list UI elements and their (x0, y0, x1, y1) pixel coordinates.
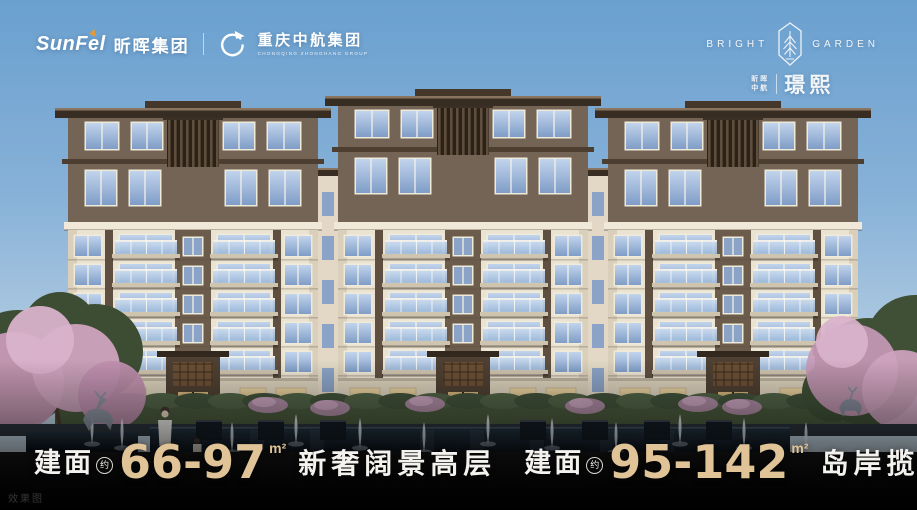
zhonghang-plane-icon (217, 30, 245, 58)
area-prefix: 建面 (34, 450, 94, 477)
project-name: 璟熙 (784, 69, 834, 99)
area-prefix: 建面 (524, 450, 584, 477)
zhonghang-cn-name: 重庆中航集团 (258, 32, 369, 49)
emblem-brand-line1: 昕晖 (751, 75, 769, 84)
area-unit: m² (269, 441, 286, 455)
emblem-row: BRIGHT GARDEN (706, 22, 879, 66)
tagline-flats: 建面 约 95-142 m² 岛岸揽景洋房 (524, 441, 917, 482)
project-emblem: BRIGHT GARDEN 昕晖 中航 璟熙 (706, 22, 879, 99)
zhonghang-logo: 重庆中航集团 CHONGQING ZHONGHANG GROUP (258, 32, 369, 57)
render-watermark: 效果图 (8, 490, 44, 505)
emblem-brand-line2: 中航 (751, 84, 769, 93)
area-unit: m² (791, 441, 808, 455)
logo-divider (203, 33, 204, 55)
area-range: 95-142 (609, 444, 788, 482)
approx-circle-icon: 约 (96, 457, 113, 474)
approx-circle-icon: 约 (586, 457, 603, 474)
emblem-divider (776, 74, 777, 94)
emblem-word-left: BRIGHT (706, 39, 768, 50)
emblem-subtitle: 昕晖 中航 璟熙 (751, 69, 834, 99)
zhonghang-en-name: CHONGQING ZHONGHANG GROUP (258, 51, 369, 56)
sunfel-cn-name: 昕晖集团 (114, 32, 190, 57)
garden-tree-emblem-icon (777, 22, 803, 66)
product-title: 岛岸揽景洋房 (821, 450, 917, 478)
brand-logos: SunFel 昕晖集团 重庆中航集团 CHONGQING ZHONGHANG G… (36, 30, 368, 58)
emblem-word-right: GARDEN (812, 39, 879, 50)
sunfel-logo: SunFel 昕晖集团 (36, 32, 190, 57)
emblem-brand-stack: 昕晖 中航 (751, 75, 769, 93)
tagline-highrise: 建面 约 66-97 m² 新奢阔景高层 (34, 441, 496, 482)
product-title: 新奢阔景高层 (298, 450, 496, 478)
area-range: 66-97 (119, 444, 266, 482)
poster: SunFel 昕晖集团 重庆中航集团 CHONGQING ZHONGHANG G… (0, 0, 917, 510)
tagline: 建面 约 66-97 m² 新奢阔景高层 建面 约 95-142 m² 岛岸揽景… (34, 441, 917, 482)
